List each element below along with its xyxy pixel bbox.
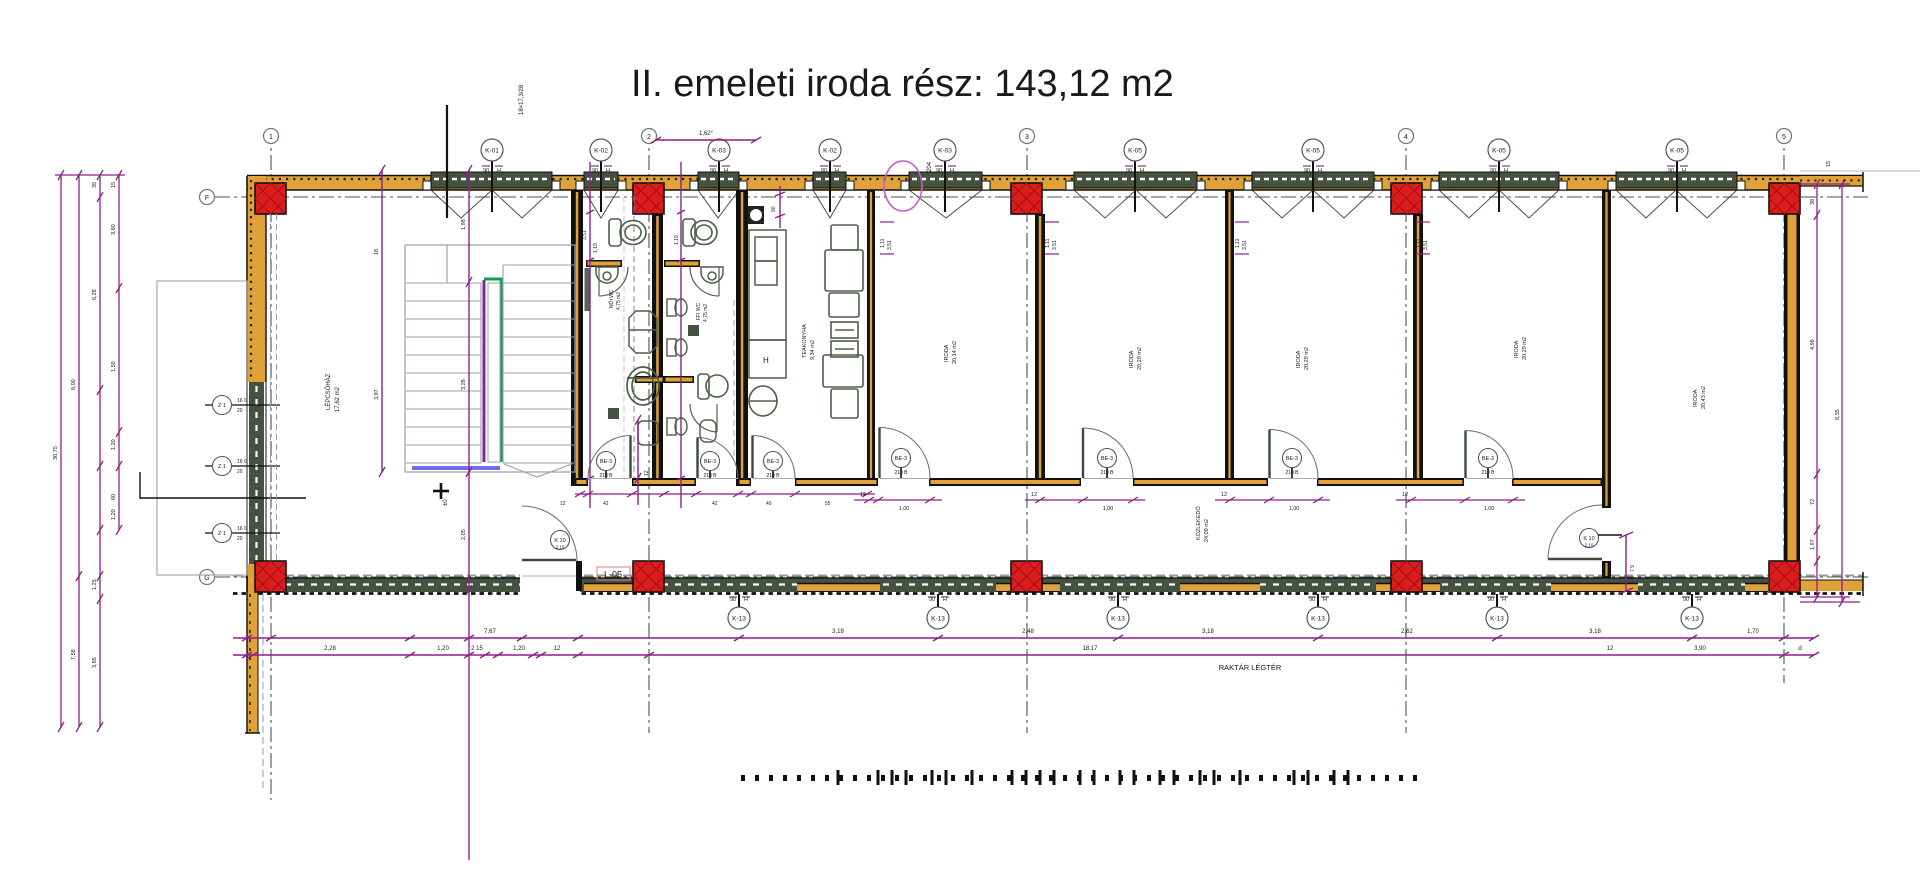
svg-text:90: 90 [1304, 168, 1310, 174]
svg-text:IRODA: IRODA [1514, 340, 1520, 358]
svg-text:H: H [1504, 168, 1508, 174]
svg-text:3,18: 3,18 [1589, 629, 1601, 635]
svg-text:2 15: 2 15 [471, 646, 483, 652]
svg-text:90: 90 [821, 168, 827, 174]
svg-text:20: 20 [237, 408, 243, 414]
svg-text:20,43 m2: 20,43 m2 [1701, 386, 1707, 409]
svg-text:H: H [1140, 168, 1144, 174]
svg-text:2,05: 2,05 [461, 529, 467, 540]
svg-text:1,20: 1,20 [111, 439, 117, 450]
svg-text:LÉPCSŐHÁZ: LÉPCSŐHÁZ [325, 373, 332, 410]
svg-text:90: 90 [483, 168, 489, 174]
svg-text:IRODA: IRODA [944, 344, 950, 362]
svg-text:35: 35 [92, 182, 98, 188]
svg-text:1,20: 1,20 [111, 509, 117, 520]
svg-text:BE-3: BE-3 [1482, 456, 1494, 462]
svg-text:K-05: K-05 [1128, 148, 1142, 155]
svg-text:16 0: 16 0 [237, 398, 247, 404]
svg-text:7 9: 7 9 [1630, 565, 1636, 572]
svg-text:1,25: 1,25 [92, 579, 98, 590]
svg-text:20: 20 [237, 536, 243, 542]
svg-text:1,00: 1,00 [1484, 506, 1495, 512]
svg-text:90: 90 [592, 168, 598, 174]
svg-text:20,14 m2: 20,14 m2 [952, 341, 958, 364]
svg-text:3,28: 3,28 [461, 379, 467, 390]
svg-text:1,00: 1,00 [1289, 506, 1300, 512]
svg-text:12: 12 [860, 492, 866, 498]
svg-text:K-13: K-13 [1111, 616, 1125, 623]
svg-text:H: H [724, 168, 728, 174]
svg-text:18,17: 18,17 [1082, 646, 1098, 652]
svg-text:3,51: 3,51 [1052, 240, 1058, 250]
svg-text:1,11: 1,11 [1416, 238, 1422, 248]
svg-text:1,11: 1,11 [880, 238, 886, 248]
svg-text:40: 40 [766, 501, 772, 507]
svg-text:K-13: K-13 [1685, 616, 1699, 623]
svg-text:H: H [1697, 597, 1701, 603]
svg-text:1,19: 1,19 [674, 235, 680, 245]
svg-text:H: H [835, 168, 839, 174]
svg-text:210 B: 210 B [1285, 470, 1299, 476]
svg-text:TEAKONYHA: TEAKONYHA [802, 324, 808, 358]
svg-text:FFI WC: FFI WC [696, 302, 702, 320]
svg-text:H: H [1682, 168, 1686, 174]
svg-text:12: 12 [1031, 492, 1037, 498]
svg-text:12: 12 [1221, 492, 1227, 498]
svg-text:204: 204 [927, 161, 933, 172]
svg-text:210 B: 210 B [703, 473, 717, 479]
svg-text:90: 90 [710, 168, 716, 174]
svg-text:210 B: 210 B [599, 473, 613, 479]
svg-text:2: 2 [647, 134, 651, 141]
svg-text:42: 42 [603, 501, 609, 507]
svg-text:90: 90 [1683, 597, 1689, 603]
svg-text:210 B: 210 B [1100, 470, 1114, 476]
svg-text:H: H [763, 356, 769, 365]
svg-text:1,62°: 1,62° [699, 131, 714, 137]
svg-text:55: 55 [825, 501, 831, 507]
svg-text:±0: ±0 [443, 499, 449, 506]
svg-text:3: 3 [1025, 134, 1029, 141]
svg-text:3,51: 3,51 [582, 230, 588, 240]
svg-text:210 B: 210 B [1481, 470, 1495, 476]
svg-text:K-03: K-03 [712, 148, 726, 155]
svg-text:Z 1: Z 1 [218, 464, 226, 470]
svg-text:3,60: 3,60 [111, 224, 117, 235]
svg-text:90: 90 [936, 168, 942, 174]
svg-text:9,34 m2: 9,34 m2 [810, 340, 816, 360]
svg-text:7,58: 7,58 [71, 649, 77, 660]
svg-text:K-13: K-13 [1311, 616, 1325, 623]
svg-text:1,70: 1,70 [1747, 629, 1759, 635]
svg-text:12: 12 [644, 470, 650, 476]
svg-text:1,11: 1,11 [1235, 238, 1241, 248]
svg-text:18: 18 [374, 249, 380, 255]
svg-text:38: 38 [1810, 199, 1816, 205]
svg-text:BE-3: BE-3 [600, 459, 612, 465]
svg-text:Z 1: Z 1 [218, 531, 226, 537]
svg-text:K-01: K-01 [485, 148, 499, 155]
svg-text:17,62 m2: 17,62 m2 [335, 386, 341, 412]
svg-text:72: 72 [1810, 499, 1816, 505]
svg-text:K-13: K-13 [1490, 616, 1504, 623]
svg-text:H: H [744, 597, 748, 603]
svg-text:K-02: K-02 [823, 148, 837, 155]
svg-text:20,29 m2: 20,29 m2 [1304, 347, 1310, 370]
svg-text:H: H [1502, 597, 1506, 603]
svg-text:L-05: L-05 [604, 570, 622, 580]
svg-text:20,29 m2: 20,29 m2 [1137, 347, 1143, 370]
svg-text:d: d [1798, 646, 1801, 652]
svg-text:4: 4 [1404, 134, 1408, 141]
svg-text:1,00: 1,00 [899, 506, 910, 512]
svg-text:K-13: K-13 [931, 616, 945, 623]
svg-text:K-05: K-05 [1306, 148, 1320, 155]
svg-text:20,29 m2: 20,29 m2 [1522, 337, 1528, 360]
svg-text:2,62: 2,62 [1401, 629, 1413, 635]
svg-text:F: F [205, 195, 209, 202]
svg-text:3,90: 3,90 [1694, 646, 1706, 652]
svg-text:3,97: 3,97 [374, 389, 380, 400]
svg-text:H: H [1123, 597, 1127, 603]
svg-text:7,67: 7,67 [484, 629, 496, 635]
svg-text:90: 90 [730, 597, 736, 603]
svg-text:2,10: 2,10 [556, 545, 565, 550]
svg-text:H: H [1318, 168, 1322, 174]
svg-text:3,51: 3,51 [887, 240, 893, 250]
svg-text:IRODA: IRODA [1129, 350, 1135, 368]
svg-text:24,09 m2: 24,09 m2 [1204, 519, 1210, 542]
svg-text:1,97: 1,97 [1810, 539, 1816, 550]
svg-text:8,35: 8,35 [1835, 409, 1841, 420]
svg-text:1: 1 [269, 134, 273, 141]
svg-text:36,75: 36,75 [53, 446, 59, 460]
svg-text:16 0: 16 0 [237, 526, 247, 532]
svg-text:1,00: 1,00 [1103, 506, 1114, 512]
svg-text:K-05: K-05 [1492, 148, 1506, 155]
svg-text:H: H [950, 168, 954, 174]
svg-text:H: H [943, 597, 947, 603]
svg-text:3,85: 3,85 [92, 657, 98, 668]
svg-text:II. emeleti iroda rész: 143,12: II. emeleti iroda rész: 143,12 m2 [631, 63, 1174, 105]
svg-text:K-03: K-03 [938, 148, 952, 155]
svg-text:5: 5 [1782, 134, 1786, 141]
svg-text:3,51: 3,51 [1423, 240, 1429, 250]
svg-text:1,11: 1,11 [1045, 238, 1051, 248]
svg-text:1,20: 1,20 [437, 646, 449, 652]
svg-text:3,51: 3,51 [1242, 240, 1248, 250]
svg-text:2,10: 2,10 [1585, 543, 1594, 548]
svg-text:4,75 m2: 4,75 m2 [616, 292, 622, 310]
svg-text:1,98: 1,98 [461, 219, 467, 230]
svg-text:Z 1: Z 1 [218, 403, 226, 409]
svg-text:210 B: 210 B [894, 470, 908, 476]
svg-text:15: 15 [1826, 161, 1832, 167]
svg-text:2,28: 2,28 [324, 646, 336, 652]
svg-text:BE-3: BE-3 [1286, 456, 1298, 462]
svg-text:42: 42 [712, 501, 718, 507]
svg-text:90: 90 [771, 206, 777, 212]
svg-text:4,75 m2: 4,75 m2 [703, 304, 709, 322]
svg-text:12: 12 [560, 501, 566, 507]
svg-text:BE-3: BE-3 [704, 459, 716, 465]
svg-text:BE-3: BE-3 [1101, 456, 1113, 462]
svg-text:BE-3: BE-3 [895, 456, 907, 462]
svg-text:3,18: 3,18 [832, 629, 844, 635]
svg-text:K 10: K 10 [554, 538, 565, 544]
svg-text:12: 12 [1402, 492, 1408, 498]
svg-text:8,00: 8,00 [71, 379, 77, 390]
svg-text:60: 60 [111, 494, 117, 500]
svg-text:1,20: 1,20 [513, 646, 525, 652]
svg-text:15: 15 [111, 182, 117, 188]
svg-text:NŐI WC: NŐI WC [608, 289, 615, 308]
svg-text:H: H [497, 168, 501, 174]
svg-text:1,50: 1,50 [111, 361, 117, 372]
svg-text:H: H [606, 168, 610, 174]
svg-text:90: 90 [1309, 597, 1315, 603]
svg-text:6,28: 6,28 [92, 289, 98, 300]
svg-text:12: 12 [554, 646, 561, 652]
svg-text:3,18: 3,18 [1202, 629, 1214, 635]
svg-text:2,48: 2,48 [1022, 629, 1034, 635]
svg-text:12: 12 [1607, 646, 1614, 652]
svg-text:90: 90 [1488, 597, 1494, 603]
svg-text:BE-3: BE-3 [767, 459, 779, 465]
svg-text:18×17,3/28: 18×17,3/28 [519, 84, 525, 115]
svg-text:G: G [204, 575, 209, 582]
svg-text:90: 90 [1668, 168, 1674, 174]
svg-text:K 10: K 10 [1583, 536, 1594, 542]
svg-text:90: 90 [1109, 597, 1115, 603]
svg-text:90: 90 [1490, 168, 1496, 174]
svg-text:KÖZLEKEDŐ: KÖZLEKEDŐ [1195, 506, 1202, 540]
svg-text:20: 20 [237, 469, 243, 475]
svg-text:H: H [1323, 597, 1327, 603]
svg-text:210 B: 210 B [766, 473, 780, 479]
svg-text:90: 90 [1126, 168, 1132, 174]
svg-text:K-02: K-02 [594, 148, 608, 155]
svg-text:K-05: K-05 [1670, 148, 1684, 155]
svg-text:4,98: 4,98 [1810, 339, 1816, 350]
svg-text:1,19: 1,19 [593, 243, 599, 253]
svg-text:K-13: K-13 [732, 616, 746, 623]
svg-text:16 0: 16 0 [237, 459, 247, 465]
svg-text:90: 90 [929, 597, 935, 603]
svg-text:IRODA: IRODA [1296, 350, 1302, 368]
svg-text:IRODA: IRODA [1693, 389, 1699, 407]
svg-text:RAKTÁR LÉGTÉR: RAKTÁR LÉGTÉR [1219, 663, 1282, 672]
